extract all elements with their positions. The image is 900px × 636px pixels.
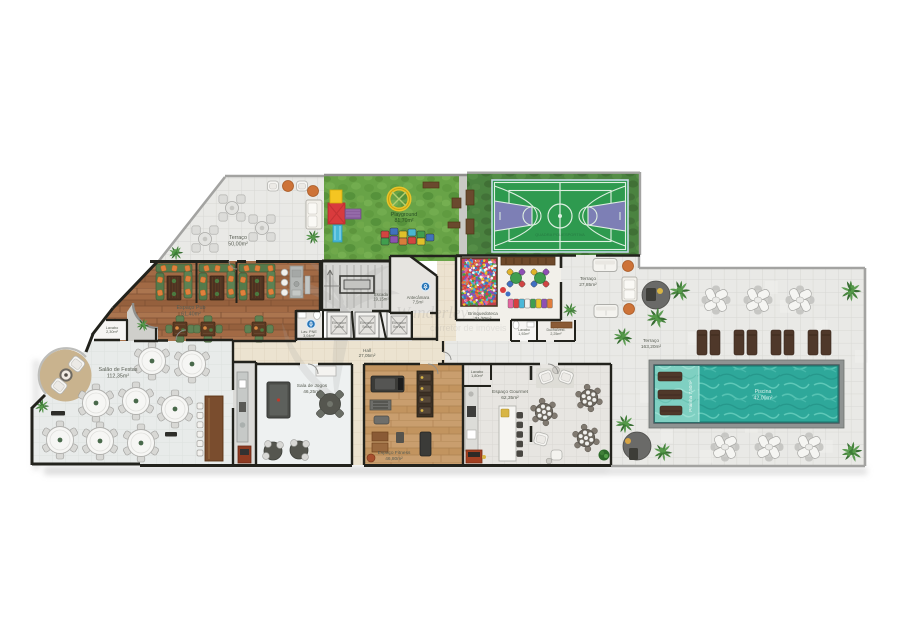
svg-text:Terraço: Terraço [580,276,596,282]
svg-text:7,5m²: 7,5m² [413,300,424,305]
svg-text:Social: Social [362,325,372,329]
svg-text:46,80m²: 46,80m² [385,456,403,462]
svg-text:27,05m²: 27,05m² [359,353,376,358]
svg-text:Piscina: Piscina [755,389,772,395]
svg-text:Espaço Fitness: Espaço Fitness [378,450,411,456]
svg-text:Terraço: Terraço [229,235,247,241]
svg-text:61,40m²: 61,40m² [181,311,201,317]
svg-text:1,80m²: 1,80m² [471,374,484,378]
svg-text:Espaço Gourmet: Espaço Gourmet [492,389,529,395]
svg-text:Sala de Jogos: Sala de Jogos [297,383,328,389]
svg-text:Prainha 7,50m²: Prainha 7,50m² [688,380,693,412]
svg-text:50,00m²: 50,00m² [228,241,248,247]
svg-text:Espaço Pub: Espaço Pub [176,305,205,311]
svg-text:163,20m²: 163,20m² [641,344,662,350]
svg-text:27,85m²: 27,85m² [579,282,597,288]
svg-text:42,00m²: 42,00m² [753,396,772,402]
svg-text:62,35m²: 62,35m² [501,395,519,401]
svg-text:19,15m²: 19,15m² [373,297,389,302]
svg-text:Terraço: Terraço [643,338,659,344]
svg-text:112,35m²: 112,35m² [107,373,130,379]
svg-text:81,70m²: 81,70m² [394,218,413,224]
svg-text:QUADRA POLIESPORTIVA: QUADRA POLIESPORTIVA [535,232,585,237]
svg-text:2,30m²: 2,30m² [106,330,119,334]
svg-text:46,25m²: 46,25m² [303,389,321,395]
svg-text:corretor de imóveis: corretor de imóveis [430,323,507,333]
svg-text:Serviço: Serviço [393,325,405,329]
svg-text:1,92m²: 1,92m² [518,332,530,336]
svg-text:Playground: Playground [391,212,417,218]
svg-text:Salão de Festas: Salão de Festas [99,367,138,373]
svg-text:Social: Social [334,325,344,329]
svg-text:3,04m²: 3,04m² [303,334,316,338]
svg-text:31,20m²: 31,20m² [475,316,492,321]
svg-text:2,25m²: 2,25m² [550,332,562,336]
